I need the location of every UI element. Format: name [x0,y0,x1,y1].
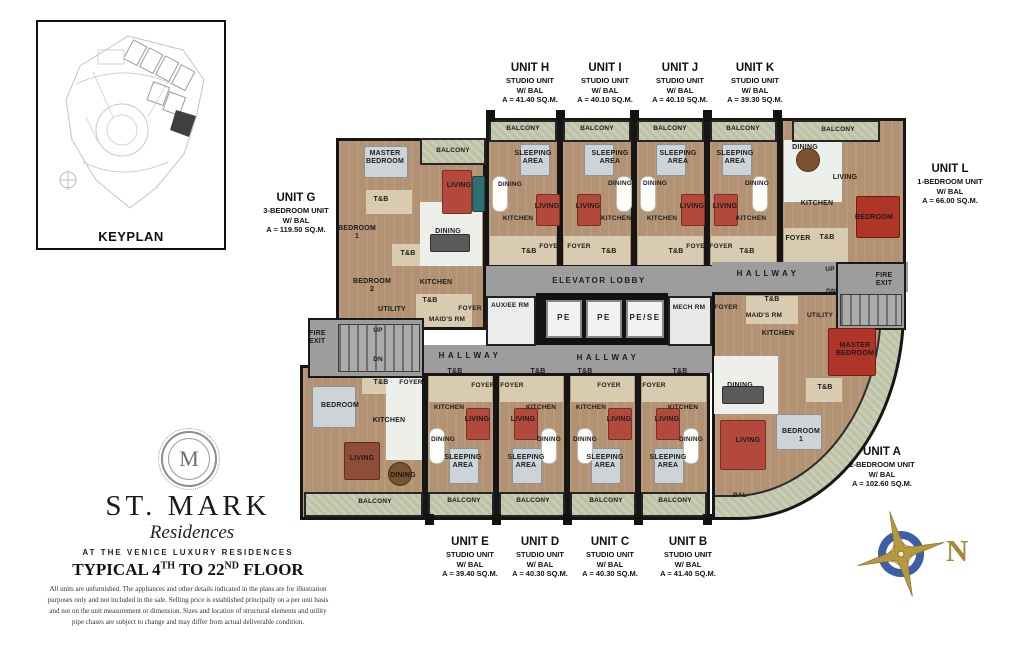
room-label: BAL [733,492,747,499]
room-label: BALCONY [580,125,614,132]
room-label: LIVING [350,455,375,463]
room-label: FOYER [709,243,732,250]
column [773,110,782,121]
room-label: BALCONY [726,125,760,132]
room-label: KITCHEN [576,404,606,411]
room-label: MAID'S RM [429,316,465,323]
room-label: T&B [818,384,833,392]
room-label: SLEEPING AREA [444,454,482,470]
brand-name: ST. MARK [105,490,270,523]
room-label: FOYER [597,382,620,389]
room-label: SLEEPING AREA [586,454,624,470]
unit-callout-a: UNIT A2-BEDROOM UNITW/ BALA = 102.60 SQ.… [827,446,937,489]
room-label: DINING [745,180,769,187]
room-label: DINING [643,180,667,187]
room-label: BEDROOM [855,214,893,222]
room-label: MASTER BEDROOM [360,150,410,166]
room-label: T&B [740,248,755,256]
room-label: SLEEPING AREA [514,150,552,166]
room-label: FOYER [686,243,709,250]
hallway-label: HALLWAY [577,353,640,362]
room-label: BALCONY [447,497,481,504]
room-label: BALCONY [358,498,392,505]
room-label: LIVING [736,437,761,445]
column [556,110,565,121]
room-label: KITCHEN [434,404,464,411]
column [634,514,643,525]
room-label: T&B [423,297,438,305]
room-label: T&B [673,368,688,376]
column [703,514,712,525]
room-label: T&B [669,248,684,256]
room-label: MAID'S RM [746,312,782,319]
room-label: T&B [602,248,617,256]
unit-callout-l: UNIT L1-BEDROOM UNITW/ BALA = 66.00 SQ.M… [895,163,1005,206]
right-fire-stairs [840,294,902,326]
brand-script-name: Residences [150,522,234,544]
room-label: FOYER [399,379,422,386]
fire-exit-label: FIRE EXIT [867,272,901,288]
room-label: LIVING [655,416,680,424]
room-label: DINING [573,436,597,443]
room-label: T&B [374,196,389,204]
living-rug [442,170,472,214]
room-label: SLEEPING AREA [716,150,754,166]
room-label: KITCHEN [762,330,795,338]
room-label: FOYER [458,305,481,312]
room-label: LIVING [511,416,536,424]
room-label: LIVING [576,203,601,211]
room-label: KITCHEN [601,215,631,222]
room-label: SLEEPING AREA [649,454,687,470]
elevator-label: PE [597,313,611,322]
unit-e-balcony [428,492,494,517]
column [630,110,639,121]
aux-room-label: AUX/EE RM [489,302,531,309]
column [492,514,501,525]
room-label: T&B [820,234,835,242]
elevator-label: PE [557,313,571,322]
up-label: UP [825,266,834,273]
elevator-label: PE/SE [629,313,660,322]
dining-table [429,428,445,464]
up-label: UP [373,327,382,334]
unit-d-balcony [499,492,565,517]
room-label: DINING [727,382,753,390]
column [486,110,495,121]
room-label: BEDROOM 1 [779,428,823,444]
fire-exit-label: FIRE EXIT [309,330,343,346]
room-label: BALCONY [516,497,550,504]
hallway-label: HALLWAY [439,351,502,360]
room-label: LIVING [465,416,490,424]
room-label: DINING [431,436,455,443]
hallway-label: HALLWAY [737,269,800,278]
dn-label: DN [826,288,836,295]
room-label: KITCHEN [503,215,533,222]
brand-monogram-seal: M [161,431,217,487]
room-label: FOYER [785,235,810,243]
room-label: BALCONY [506,125,540,132]
room-label: KITCHEN [668,404,698,411]
room-label: SLEEPING AREA [659,150,697,166]
keyplan-label: KEYPLAN [38,229,224,244]
brand-tagline: AT THE VENICE LUXURY RESIDENCES [82,548,293,557]
disclaimer-text: All units are unfurnished. The appliance… [38,584,338,627]
room-label: UTILITY [807,312,833,319]
room-label: BEDROOM 2 [350,278,394,294]
room-label: FOYER [642,382,665,389]
column [703,110,712,121]
elevator-lobby-label: ELEVATOR LOBBY [552,276,645,285]
room-label: T&B [531,368,546,376]
mech-room-label: MECH RM [672,304,706,311]
room-label: FOYER [539,243,562,250]
room-label: T&B [401,250,416,258]
room-label: LIVING [535,203,560,211]
room-label: T&B [522,248,537,256]
room-label: BALCONY [589,497,623,504]
room-label: BALCONY [653,125,687,132]
compass-north-label: N [946,533,968,569]
room-label: LIVING [713,203,738,211]
room-label: MASTER BEDROOM [830,342,880,358]
room-label: BALCONY [821,126,855,133]
room-label: LIVING [607,416,632,424]
column [563,514,572,525]
unit-callout-k: UNIT KSTUDIO UNITW/ BALA = 39.30 SQ.M. [700,62,810,105]
monogram-letter: M [168,438,210,480]
room-label: FOYER [567,243,590,250]
floor-title: TYPICAL 4TH TO 22ND FLOOR [72,560,303,580]
unit-l-tb-zone [784,228,848,262]
room-label: KITCHEN [801,200,834,208]
room-label: DINING [679,436,703,443]
unit-callout-g: UNIT G3-BEDROOM UNITW/ BALA = 119.50 SQ.… [241,192,351,235]
room-label: FOYER [500,382,523,389]
sofa [472,176,485,212]
room-label: DINING [608,180,632,187]
compass-rose-icon [856,506,952,602]
room-label: LIVING [833,174,858,182]
unit-c-balcony [570,492,636,517]
room-label: FOYER [471,382,494,389]
room-label: SLEEPING AREA [507,454,545,470]
keyplan-box: KEYPLAN [36,20,226,250]
room-label: KITCHEN [647,215,677,222]
room-label: BEDROOM [321,402,359,410]
room-label: BALCONY [658,497,692,504]
room-label: DINING [435,228,461,236]
room-label: FOYER [714,304,737,311]
room-label: DINING [390,472,416,480]
room-label: LIVING [680,203,705,211]
room-label: SLEEPING AREA [591,150,629,166]
unit-callout-b: UNIT BSTUDIO UNITW/ BALA = 41.40 SQ.M. [633,536,743,579]
unit-i-tb-zone [564,236,630,265]
room-label: T&B [578,368,593,376]
room-label: DINING [498,181,522,188]
room-label: LIVING [447,182,472,190]
room-label: KITCHEN [420,279,453,287]
room-label: T&B [448,368,463,376]
room-label: KITCHEN [736,215,766,222]
room-label: BALCONY [436,147,470,154]
room-label: DINING [537,436,561,443]
room-label: T&B [765,296,780,304]
room-label: UTILITY [378,306,406,314]
column [425,514,434,525]
room-label: KITCHEN [373,417,406,425]
dining-table [430,234,470,252]
room-label: T&B [374,379,389,387]
floor-plan-page: KEYPLAN M ST. MARK Residences AT THE VEN… [0,0,1024,662]
room-label: KITCHEN [526,404,556,411]
dn-label: DN [373,356,383,363]
keyplan-map [38,22,224,224]
room-label: DINING [792,144,818,152]
unit-b-balcony [641,492,707,517]
